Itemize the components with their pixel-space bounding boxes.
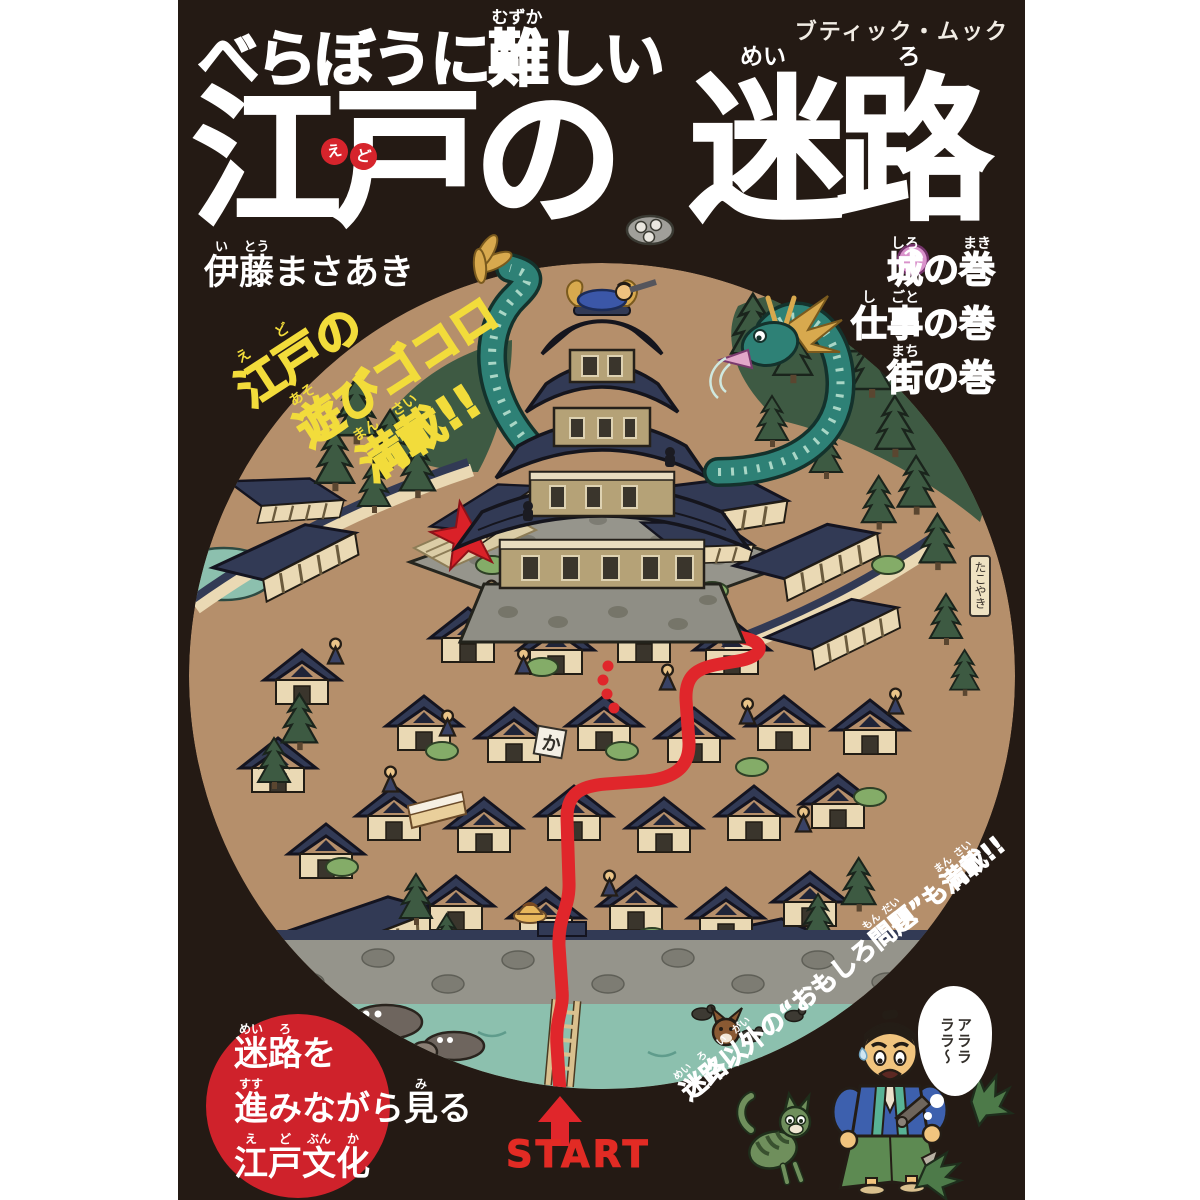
crest-balloon [627,216,673,244]
vol-seg: 街 [887,358,923,399]
badge-seg: 迷 [234,1034,268,1074]
vol-seg: の巻 [923,358,995,399]
roof-sign-text: か [540,732,563,757]
badge-seg: 化 [336,1144,370,1184]
publisher-label: ブティック・ムック [795,22,1009,44]
roof-sign: か [534,726,566,758]
vol-seg: 仕 [851,304,887,345]
vol-seg: 事 [887,304,923,345]
speech-bubble-tail [930,1094,944,1108]
start-label: START [506,1136,651,1173]
badge-line: 迷めい路ろを [234,1022,472,1077]
title-seg: 迷 [690,60,836,242]
badge-line: 進すすみながら見みる [234,1077,472,1132]
badge-seg: 路 [268,1034,302,1074]
takoyaki-sign-text: たこやき [973,561,987,609]
badge-seg: を [302,1034,336,1074]
speech-text: ララ〜 [939,1017,954,1065]
takoyaki-sign: たこやき [970,556,990,616]
volume-item-work: 仕し事ごとの巻 [851,290,995,344]
badge-seg: 文 [302,1144,336,1184]
badge-seg: みながら [268,1089,404,1129]
red-badge-text: 迷めい路ろを 進すすみながら見みる 江え戸ど文ぶん化か [234,1022,472,1187]
cat-character [741,1094,810,1182]
title-char: 江 [192,74,333,247]
author-seg: 伊 [204,253,239,293]
badge-seg: 江 [234,1144,268,1184]
book-cover: たこやき か [178,0,1025,1200]
vol-seg: の [923,250,959,291]
volume-item-town: 街まちの巻 [851,344,995,398]
badge-seg: 戸 [268,1144,302,1184]
vol-seg: の巻 [923,304,995,345]
title-maze: 迷めい路ろ [690,44,982,229]
title-char: の [474,74,615,247]
title-edo: 江戸の [192,86,615,235]
badge-line: 江え戸ど文ぶん化か [234,1132,472,1187]
badge-seg: 見 [404,1089,438,1129]
speech-bubble-tail [924,1112,932,1120]
moat-stone-wall [178,940,1025,1004]
speech-text: アララ [956,1017,971,1065]
volume-item-castle: 城しろの巻まき [851,236,995,290]
badge-seg: る [438,1089,472,1129]
badge-seg: 進 [234,1089,268,1129]
vol-seg: 城 [887,250,923,291]
title-seg: 路 [836,60,982,242]
vol-seg: 巻 [959,250,995,291]
author-seg: 藤 [239,253,274,293]
bubble-kana: え [326,143,343,160]
volume-list: 城しろの巻まき 仕し事ごとの巻 街まちの巻 [851,236,995,397]
bubble-kana: ど [355,148,372,165]
